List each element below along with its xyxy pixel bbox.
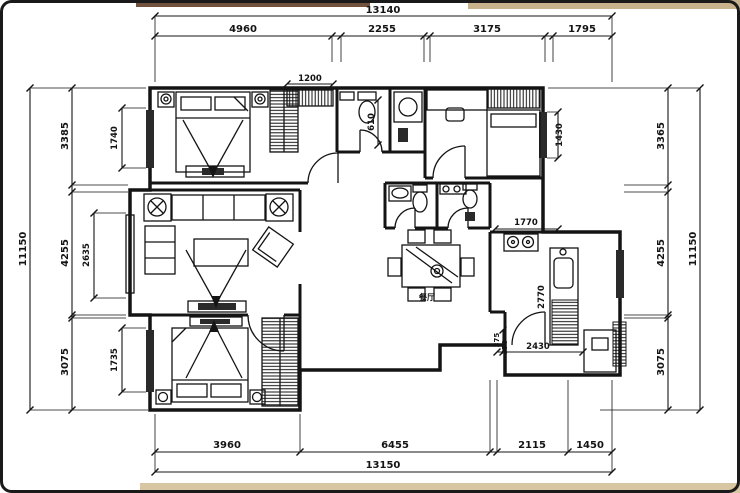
dim-bottom-seg-3: 2115: [518, 440, 546, 451]
dim-closet: 1200: [298, 74, 322, 84]
dim-left-seg-1: 3385: [60, 122, 71, 150]
floor-drain: [465, 212, 475, 221]
floor-plan-page: 13140 4960 2255 3175 1795 3960 6455 2115…: [0, 0, 740, 493]
balcony-window-hatched: [613, 322, 626, 366]
dim-balcony-depth: 2770: [537, 285, 547, 309]
fixture: [398, 128, 408, 142]
dim-left-total: 11150: [18, 232, 29, 267]
dim-top-seg-1: 4960: [229, 24, 257, 35]
dim-right-seg-1: 3365: [656, 122, 667, 150]
dim-bath-width: 610: [367, 113, 377, 131]
dim-right-seg-2: 4255: [656, 239, 667, 267]
dim-bottom-seg-4: 1450: [576, 440, 604, 451]
dim-bedroom2-window: 1430: [555, 123, 565, 147]
dim-kitchen-opening: 1770: [514, 218, 538, 228]
dim-top-seg-2: 2255: [368, 24, 396, 35]
dim-step-b: 370: [501, 340, 509, 355]
dim-step-a: 375: [493, 333, 501, 348]
balcony-window-right: [616, 250, 624, 298]
dining-room-label: 餐厅: [418, 292, 435, 302]
dim-left-seg-2: 4255: [60, 239, 71, 267]
master-window: [146, 110, 154, 168]
dim-bottom-seg-1: 3960: [213, 440, 241, 451]
dim-bottom-total: 13150: [366, 460, 401, 471]
dim-master-window: 1740: [110, 126, 120, 150]
dim-top-seg-3: 3175: [473, 24, 501, 35]
dim-top-total: 13140: [366, 5, 401, 16]
floor-plan-canvas: 13140 4960 2255 3175 1795 3960 6455 2115…: [0, 0, 740, 493]
dim-right-total: 11150: [688, 232, 699, 267]
wardrobe: [488, 88, 540, 108]
radiator: [552, 300, 578, 344]
dim-bedroom3-window: 1735: [110, 348, 120, 372]
paper-background: [0, 0, 740, 493]
dim-right-seg-3: 3075: [656, 348, 667, 376]
dim-balcony-width: 2430: [526, 342, 550, 352]
dim-left-seg-3: 3075: [60, 348, 71, 376]
dim-top-seg-4: 1795: [568, 24, 596, 35]
bedroom3-window: [146, 330, 154, 392]
dim-living-window: 2635: [82, 243, 92, 267]
dim-bottom-seg-2: 6455: [381, 440, 409, 451]
